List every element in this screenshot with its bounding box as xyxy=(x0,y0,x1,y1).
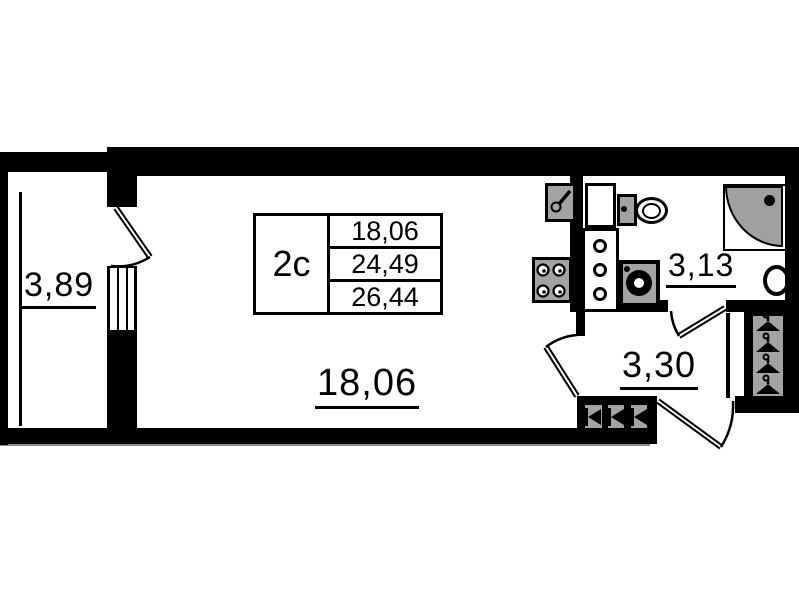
balcony-area-label: 3,89 xyxy=(22,266,96,309)
unit-area-rows: 18,06 24,49 26,44 xyxy=(330,216,440,312)
cabinet-glyph-icon xyxy=(585,408,601,426)
unit-info-table: 2с 18,06 24,49 26,44 xyxy=(253,213,443,315)
balcony-door xyxy=(111,208,150,266)
hanger-icon xyxy=(756,334,780,353)
living-room-area-label: 18,06 xyxy=(315,362,419,409)
hanger-icon xyxy=(756,313,780,332)
faucet-icon xyxy=(552,191,571,212)
unit-area-row: 26,44 xyxy=(330,282,440,312)
living-room-door xyxy=(546,335,577,396)
unit-area-row: 24,49 xyxy=(330,249,440,282)
cabinet-glyph-icon xyxy=(631,408,647,426)
bathroom-area-label: 3,13 xyxy=(666,247,736,288)
hallway-area-label: 3,30 xyxy=(620,344,698,390)
unit-type-cell: 2с xyxy=(256,216,330,312)
cabinet-glyph-icon xyxy=(608,408,624,426)
stove-burners-icon xyxy=(538,265,565,297)
unit-area-row: 18,06 xyxy=(330,216,440,249)
bathroom-door xyxy=(671,308,725,336)
entrance-door xyxy=(658,401,733,447)
floor-plan: 3,89 18,06 3,30 3,13 2с 18,06 24,49 26,4… xyxy=(0,0,799,600)
hanger-icon xyxy=(756,355,780,374)
hanger-icon xyxy=(756,376,780,395)
